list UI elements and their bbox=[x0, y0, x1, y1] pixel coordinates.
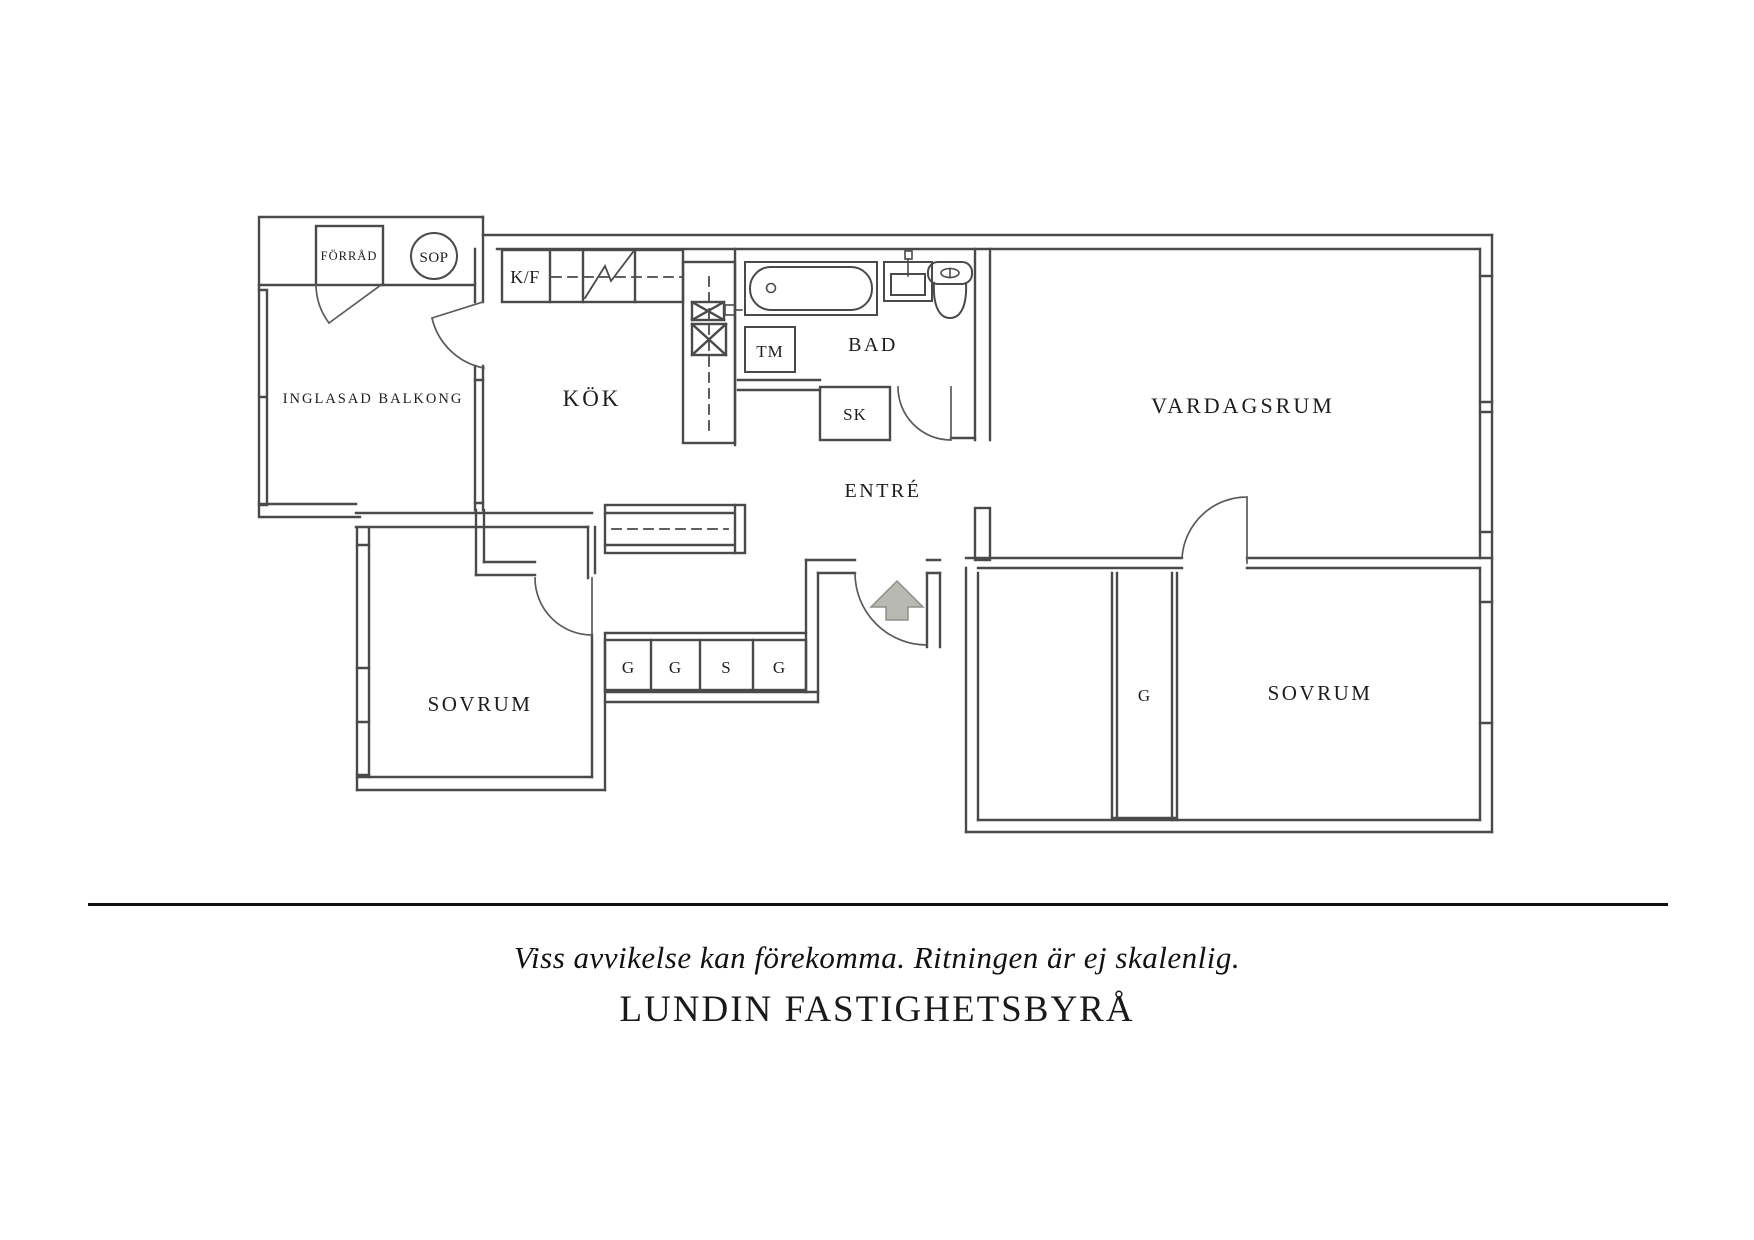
wardrobe-label-bedroom: G bbox=[1138, 686, 1150, 705]
fixture-label-closet: SK bbox=[843, 405, 867, 424]
stove-icon bbox=[585, 252, 633, 298]
room-label-bedroom-left: SOVRUM bbox=[428, 692, 533, 716]
walls bbox=[259, 217, 1492, 832]
room-label-bedroom-right: SOVRUM bbox=[1268, 681, 1373, 705]
wardrobe-label-3: S bbox=[721, 658, 730, 677]
room-label-entry: ENTRÉ bbox=[845, 479, 922, 502]
footer-brand: LUNDIN FASTIGHETSBYRÅ bbox=[0, 988, 1754, 1031]
room-label-kitchen: KÖK bbox=[563, 386, 622, 411]
room-label-bathroom: BAD bbox=[848, 334, 898, 356]
footer-disclaimer: Viss avvikelse kan förekomma. Ritningen … bbox=[0, 940, 1754, 976]
room-label-living: VARDAGSRUM bbox=[1151, 393, 1335, 418]
wardrobe-label-4: G bbox=[773, 658, 785, 677]
footer-divider bbox=[88, 903, 1668, 906]
fixture-label-fridge: K/F bbox=[510, 267, 540, 287]
room-label-balcony: INGLASAD BALKONG bbox=[283, 391, 464, 407]
floor-plan-page: FÖRRÅD SOP INGLASAD BALKONG K/F KÖK TM B… bbox=[0, 0, 1754, 1240]
fixture-label-washer: TM bbox=[756, 342, 784, 361]
toilet-icon bbox=[928, 262, 972, 318]
floor-plan: FÖRRÅD SOP INGLASAD BALKONG K/F KÖK TM B… bbox=[0, 0, 1754, 1240]
bathtub-icon bbox=[745, 262, 877, 315]
wardrobe-label-2: G bbox=[669, 658, 681, 677]
entry-arrow-icon bbox=[871, 581, 923, 620]
bathroom-sink-icon bbox=[884, 251, 932, 301]
room-label-garbage: SOP bbox=[419, 250, 448, 266]
room-label-storage: FÖRRÅD bbox=[321, 249, 378, 263]
wardrobe-label-1: G bbox=[622, 658, 634, 677]
room-labels: FÖRRÅD SOP INGLASAD BALKONG K/F KÖK TM B… bbox=[283, 249, 1373, 716]
door-arcs bbox=[316, 285, 1247, 645]
